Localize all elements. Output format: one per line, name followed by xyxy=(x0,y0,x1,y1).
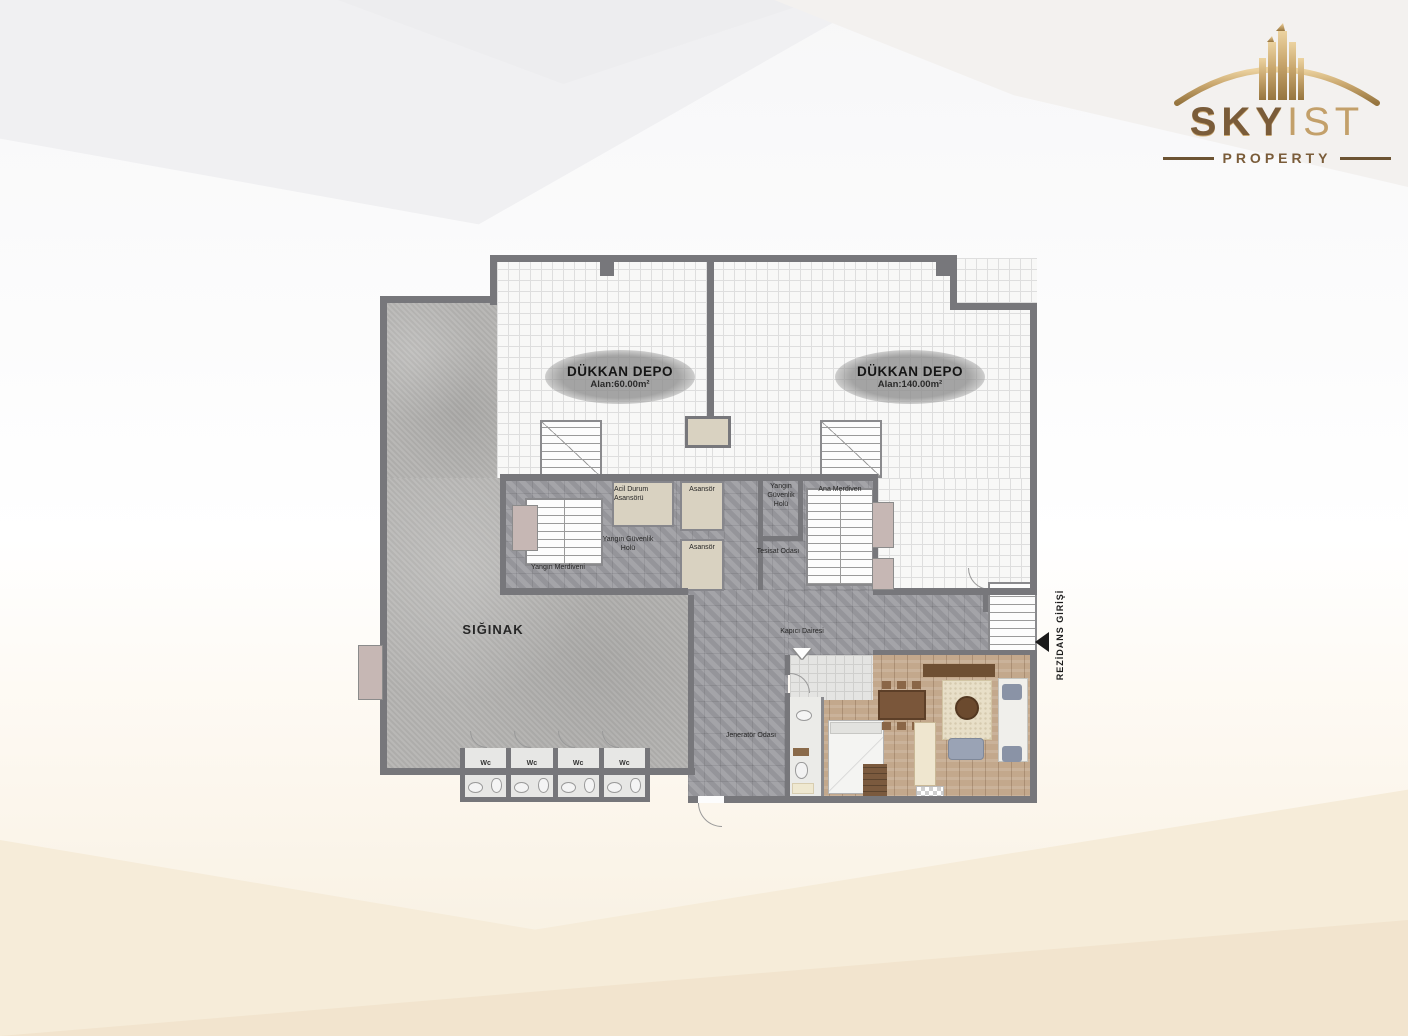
wall-shop-divider xyxy=(707,255,714,418)
wall-core-top xyxy=(500,474,878,481)
bed-pillow xyxy=(830,722,882,734)
tagline-rule-left xyxy=(1163,157,1214,160)
generator-room-label: Jeneratör Odası xyxy=(719,732,783,741)
window-accent-core-right-2 xyxy=(872,558,894,590)
bathroom-mat xyxy=(792,783,814,794)
tagline-rule-right xyxy=(1340,157,1391,160)
wall-vestibule-left-a xyxy=(785,655,790,675)
wall-right-lower xyxy=(1030,650,1037,803)
wall-apartment-top xyxy=(873,650,1030,655)
wall-arm-top xyxy=(380,296,497,303)
shop-140-label-badge: DÜKKAN DEPO Alan:140.00m² xyxy=(835,350,985,404)
shop-depot-140-floor-ext xyxy=(878,478,1037,590)
shop-60-winder-stairs xyxy=(540,420,602,478)
toilet-icon xyxy=(630,778,641,793)
wall-stub-top-1 xyxy=(600,262,614,276)
service-door-gap xyxy=(698,796,724,803)
emergency-elevator-label: Acil Durum Asansörü xyxy=(614,486,666,504)
wall-bottom xyxy=(688,796,1037,803)
fire-hall-left-label: Yangın Güvenlik Holü xyxy=(600,536,656,554)
wall-core-inner-2 xyxy=(798,478,803,540)
brand-tagline: PROPERTY xyxy=(1163,150,1391,166)
bathroom-sink-icon xyxy=(796,710,812,721)
caretaker-flat-label: Kapıcı Dairesi xyxy=(772,628,832,637)
shop-60-label-badge: DÜKKAN DEPO Alan:60.00m² xyxy=(545,350,695,404)
entrance-arrow-icon xyxy=(1035,632,1049,652)
shop-140-name: DÜKKAN DEPO xyxy=(857,364,963,379)
dining-chair xyxy=(897,681,906,689)
wc-block: Wc Wc Wc Wc xyxy=(460,748,650,802)
dining-chair xyxy=(912,681,921,689)
fire-hall-right-label: Yangın Güvenlik Holü xyxy=(764,483,798,509)
corridor-horizontal-floor xyxy=(788,590,1012,655)
toilet-icon xyxy=(491,778,502,793)
main-stairs-label: Ana Merdiven xyxy=(810,486,870,495)
main-stairs xyxy=(806,488,874,586)
wall-top xyxy=(490,255,957,262)
bathroom-counter xyxy=(793,748,809,756)
sink-icon xyxy=(514,782,529,793)
shelter-label: SIĞINAK xyxy=(418,622,568,638)
window-accent-core-left xyxy=(512,505,538,551)
shop-60-name: DÜKKAN DEPO xyxy=(567,364,673,379)
window-accent-core-right xyxy=(872,502,894,548)
wall-top-right xyxy=(950,303,1037,310)
corridor-vertical-floor xyxy=(688,590,788,798)
dining-chair xyxy=(882,681,891,689)
wall-right-upper xyxy=(1030,303,1037,588)
dining-table xyxy=(878,690,926,720)
toilet-icon xyxy=(538,778,549,793)
wall-core-inner-3 xyxy=(758,536,803,541)
wall-stub-top-2 xyxy=(936,262,950,276)
page: SKYIST PROPERTY xyxy=(0,0,1408,1036)
brand-name: SKYIST xyxy=(1163,102,1391,142)
wc-1-label: Wc xyxy=(480,760,491,767)
floor-plan: DÜKKAN DEPO Alan:60.00m² DÜKKAN DEPO Ala… xyxy=(358,250,1070,825)
utility-room-label: Tesisat Odası xyxy=(756,548,800,557)
tagline-text: PROPERTY xyxy=(1222,150,1331,166)
wall-left xyxy=(380,296,387,775)
sofa-cushion xyxy=(1002,746,1022,762)
shop-60-area: Alan:60.00m² xyxy=(590,379,649,390)
brand-logo: SKYIST PROPERTY xyxy=(1163,6,1391,184)
dining-chair xyxy=(897,722,906,730)
dining-chair xyxy=(882,722,891,730)
wc-4-label: Wc xyxy=(619,760,630,767)
wall-top-right-step xyxy=(950,255,957,310)
wall-vestibule-left-b xyxy=(785,693,790,798)
wall-shelter-bottom xyxy=(380,768,695,775)
shelter-floor-arm xyxy=(383,298,497,478)
shop-140-winder-stairs xyxy=(820,420,882,478)
window-accent-left xyxy=(358,645,383,700)
sink-icon xyxy=(607,782,622,793)
elevator-2-label: Asansör xyxy=(682,544,722,553)
caretaker-entry-arrow-icon xyxy=(793,648,811,659)
brand-name-secondary: IST xyxy=(1287,100,1364,144)
wc-2-label: Wc xyxy=(527,760,538,767)
bathroom-toilet-icon xyxy=(795,762,808,779)
building-arc-icon xyxy=(1163,6,1391,106)
tv-console xyxy=(923,664,995,677)
shop-140-area: Alan:140.00m² xyxy=(878,379,942,390)
coffee-table xyxy=(955,696,979,720)
wardrobe xyxy=(863,764,887,798)
wall-core-bottom-right xyxy=(873,588,1037,595)
wall-core-inner-1 xyxy=(758,478,763,590)
sink-icon xyxy=(468,782,483,793)
wall-corridor-shelter xyxy=(688,595,694,768)
structural-column xyxy=(685,416,731,448)
kitchen-counter xyxy=(914,722,936,786)
residence-entrance-label: REZİDANS GİRİŞİ xyxy=(1055,570,1065,700)
chaise xyxy=(948,738,984,760)
fire-stairs-label: Yangın Merdiveni xyxy=(523,564,593,573)
toilet-icon xyxy=(584,778,595,793)
wall-core-left xyxy=(500,478,506,590)
sink-icon xyxy=(561,782,576,793)
brand-name-primary: SKY xyxy=(1190,100,1287,144)
wc-3-label: Wc xyxy=(573,760,584,767)
elevator-1-label: Asansör xyxy=(682,486,722,495)
wall-entry-stub xyxy=(983,590,988,612)
wall-core-bottom-left xyxy=(500,588,688,595)
sofa-cushion xyxy=(1002,684,1022,700)
background-facet xyxy=(0,836,1408,1036)
service-door-arc xyxy=(698,803,722,827)
